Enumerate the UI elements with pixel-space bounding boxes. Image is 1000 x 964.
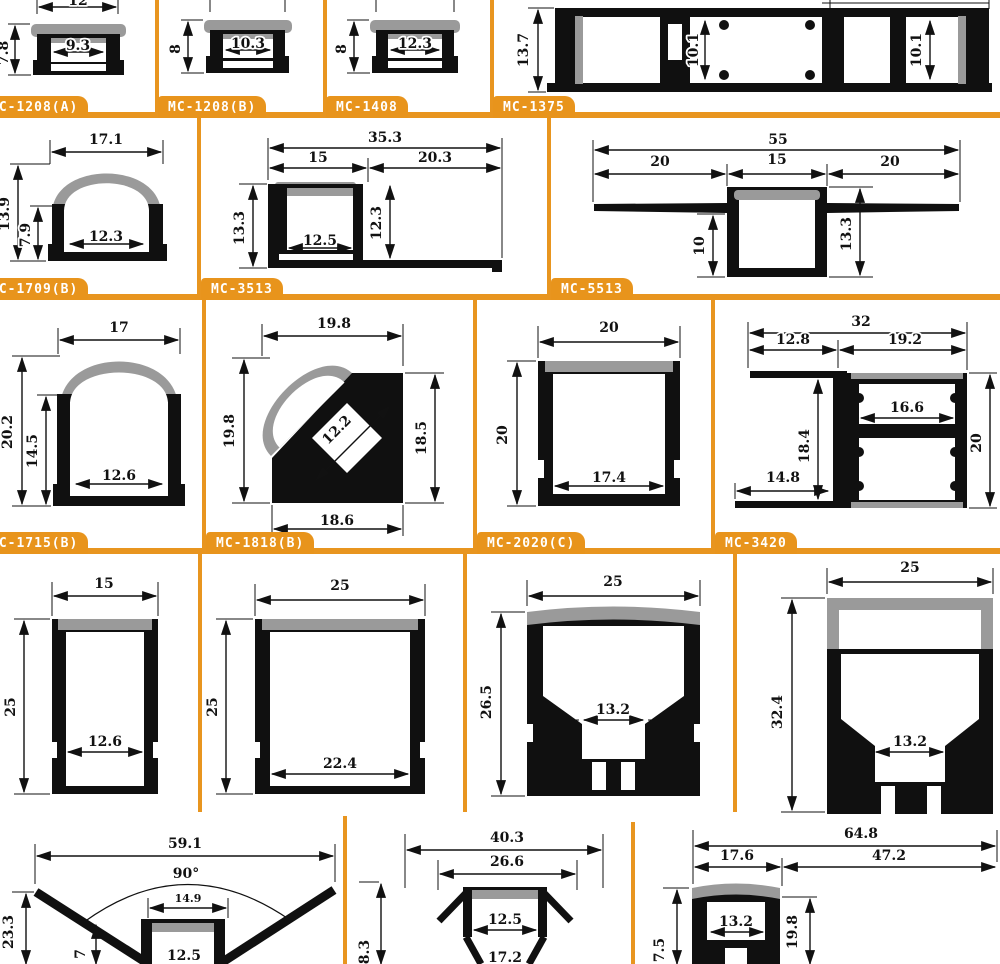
profile-drawing-mc-1709b: 17.1 13.9 7.9 12.3 [0,118,197,294]
dim-label: 18.4 [797,429,813,463]
dim-label: 19.8 [222,414,238,448]
label-tab-mc-1208b: MC-1208(B) [158,96,266,118]
profile-drawing-mc-1375: 13.7 10.1 10.1 [492,0,1000,112]
dim-label: 20 [599,320,619,336]
dim-label: 13.7 [516,33,532,67]
dim-label: 14.9 [175,892,202,905]
dim-label: 25 [205,697,221,716]
profile-cell-mc-3420: 32 12.8 19.2 18.4 14.8 16.6 20 [713,300,1000,548]
dim-label: 10.1 [686,33,702,67]
label-tab-mc-1715b: MC-1715(B) [0,532,88,554]
dim-label: 17.4 [592,470,626,486]
dim-label: 13.2 [893,734,927,750]
dim-label: 47.2 [872,848,906,864]
profile-body [245,348,403,503]
label-tab-mc-2020c: MC-2020(C) [477,532,585,554]
profile-body [735,371,967,508]
profile-body [827,598,993,814]
dim-label: 8.3 [357,940,373,964]
dim-label: 20 [650,154,670,170]
profile-cell-p403: 40.3 26.6 12.5 17.2 8.3 [345,818,631,964]
profile-drawing-mc-1715b: 17 20.2 14.5 12.6 [0,300,202,548]
profile-drawing-25x265: 25 26.5 13.2 [465,554,733,814]
profile-drawing-mc-3420: 32 12.8 19.2 18.4 14.8 16.6 20 [713,300,1000,548]
profile-body [268,182,502,272]
dim-label: 25 [3,697,19,716]
label-tab-mc-1208a: MC-1208(A) [0,96,88,118]
profile-drawing-mc-5513: 55 20 15 20 10 13.3 [549,118,1000,294]
dim-label: 10 [692,236,708,256]
dim-label: 20.3 [418,150,452,166]
profile-drawing-mc-1818b: 19.8 19.8 18.5 18.6 12.2 [204,300,473,548]
label-tab-mc-3513: MC-3513 [201,278,283,300]
dim-label: 32.4 [770,695,786,729]
dim-label: 15 [308,150,327,166]
dim-label: 12.8 [776,332,810,348]
dim-label: 19.8 [317,316,351,332]
dim-label: 35.3 [368,130,402,146]
dim-label: 20.2 [0,415,16,449]
dim-label: 15 [94,576,113,592]
dim-label: 20 [495,425,511,445]
profile-cell-mc-3513: 35.3 15 20.3 13.3 12.3 12.5 [199,118,547,294]
label-tab-mc-1818b: MC-1818(B) [206,532,314,554]
dim-label: 12.3 [369,206,385,240]
profile-drawing-25x25: 25 25 22.4 [200,554,463,814]
dim-label: 64.8 [844,826,878,842]
right-wing [218,890,334,964]
profile-cell-mc-1375: 13.7 10.1 10.1 [492,0,1000,112]
dim-label: 59.1 [168,836,202,852]
profile-cell-mc-2020c: 20 20 17.4 [475,300,711,548]
profile-drawing-15x25: 15 25 12.6 [0,554,198,814]
dim-label: 26.6 [490,854,524,870]
label-tab-mc-1709b: MC-1709(B) [0,278,88,300]
dim-label: 12 [68,0,87,9]
dim-label: 25 [900,560,919,576]
profile-drawing-mc-3513: 35.3 15 20.3 13.3 12.3 12.5 [199,118,547,294]
u-lens-cap [827,598,993,654]
dim-label: 8 [334,44,350,54]
dim-label: 13.3 [232,211,248,245]
dim-label: 13.2 [719,914,753,930]
dim-label: 90° [173,866,199,882]
dim-label: 25 [603,574,622,590]
dim-label: 18.5 [414,421,430,455]
dim-label: 7.8 [0,41,12,65]
label-tab-mc-1375: MC-1375 [493,96,575,118]
profile-cell-25x265: 25 26.5 13.2 [465,554,733,814]
dim-label: 16.6 [890,400,924,416]
dim-label: 15 [767,152,786,168]
dim-label: 17.2 [488,950,522,964]
dim-label: 20 [880,154,900,170]
dim-label: 12.6 [102,468,136,484]
label-tab-mc-3420: MC-3420 [715,532,797,554]
dim-label: 10.1 [909,33,925,67]
dim-label: 17 [109,320,128,336]
left-wing [594,203,727,213]
dim-label: 32 [851,314,870,330]
dim-label: 8 [168,44,184,54]
dim-label: 7.9 [18,223,34,247]
profile-body [547,8,992,92]
profile-cell-mc-1709b: 17.1 13.9 7.9 12.3 [0,118,197,294]
profile-body [48,174,167,262]
dim-label: 20 [969,433,985,453]
profile-cell-mc-1715b: 17 20.2 14.5 12.6 [0,300,202,548]
dim-label: 17.6 [720,848,754,864]
dim-label: 12.3 [89,229,123,245]
profile-catalog-page: MC-1208(A) MC-1208(B) MC-1408 MC-1375 MC… [0,0,1000,964]
profile-cell-corner59: 59.1 90° 14.9 23.3 7 12.5 [0,818,343,964]
profile-body [594,187,959,277]
dim-label: 26.5 [479,685,495,719]
right-wing [827,203,959,213]
profile-cell-mc-5513: 55 20 15 20 10 13.3 [549,118,1000,294]
profile-drawing-25x324: 25 32.4 13.2 [735,554,1000,814]
label-tab-mc-5513: MC-5513 [551,278,633,300]
profile-drawing-mc-2020c: 20 20 17.4 [475,300,711,548]
dim-label: 18.6 [320,513,354,529]
dim-label: 13.2 [596,702,630,718]
dim-label: 12.5 [488,912,522,928]
profile-drawing-p648: 64.8 17.6 47.2 13.2 19.8 7.5 [633,818,1000,964]
dim-label: 14.5 [25,434,41,468]
profile-drawing-corner59: 59.1 90° 14.9 23.3 7 12.5 [0,818,343,964]
dim-label: 17.1 [89,132,123,148]
dim-label: 13.3 [839,217,855,251]
label-tab-mc-1408: MC-1408 [326,96,408,118]
profile-cell-25x25: 25 25 22.4 [200,554,463,814]
dim-label: 10.3 [231,36,265,52]
dim-label: 12.5 [167,948,201,964]
dim-label: 12.6 [88,734,122,750]
profile-cell-25x324: 25 32.4 13.2 [735,554,1000,814]
profile-drawing-p403: 40.3 26.6 12.5 17.2 8.3 [345,818,631,964]
left-wing [36,892,150,964]
profile-body [52,619,158,794]
dim-label: 12.3 [398,36,432,52]
dim-label: 23.3 [1,915,17,949]
dim-label: 14.8 [766,470,800,486]
dim-label: 25 [330,578,349,594]
dim-label: 9.3 [66,38,90,54]
dim-label: 12.5 [303,233,337,249]
dim-label: 13.9 [0,197,13,231]
dim-label: 19.2 [888,332,922,348]
dim-label: 40.3 [490,830,524,846]
dim-label: 7 [73,949,89,959]
dim-label: 22.4 [323,756,357,772]
profile-cell-15x25: 15 25 12.6 [0,554,198,814]
dim-label: 19.8 [785,915,801,949]
profile-cell-mc-1818b: 19.8 19.8 18.5 18.6 12.2 [204,300,473,548]
dim-label: 55 [768,132,787,148]
profile-cell-p648: 64.8 17.6 47.2 13.2 19.8 7.5 [633,818,1000,964]
dim-label: 7.5 [652,938,668,962]
